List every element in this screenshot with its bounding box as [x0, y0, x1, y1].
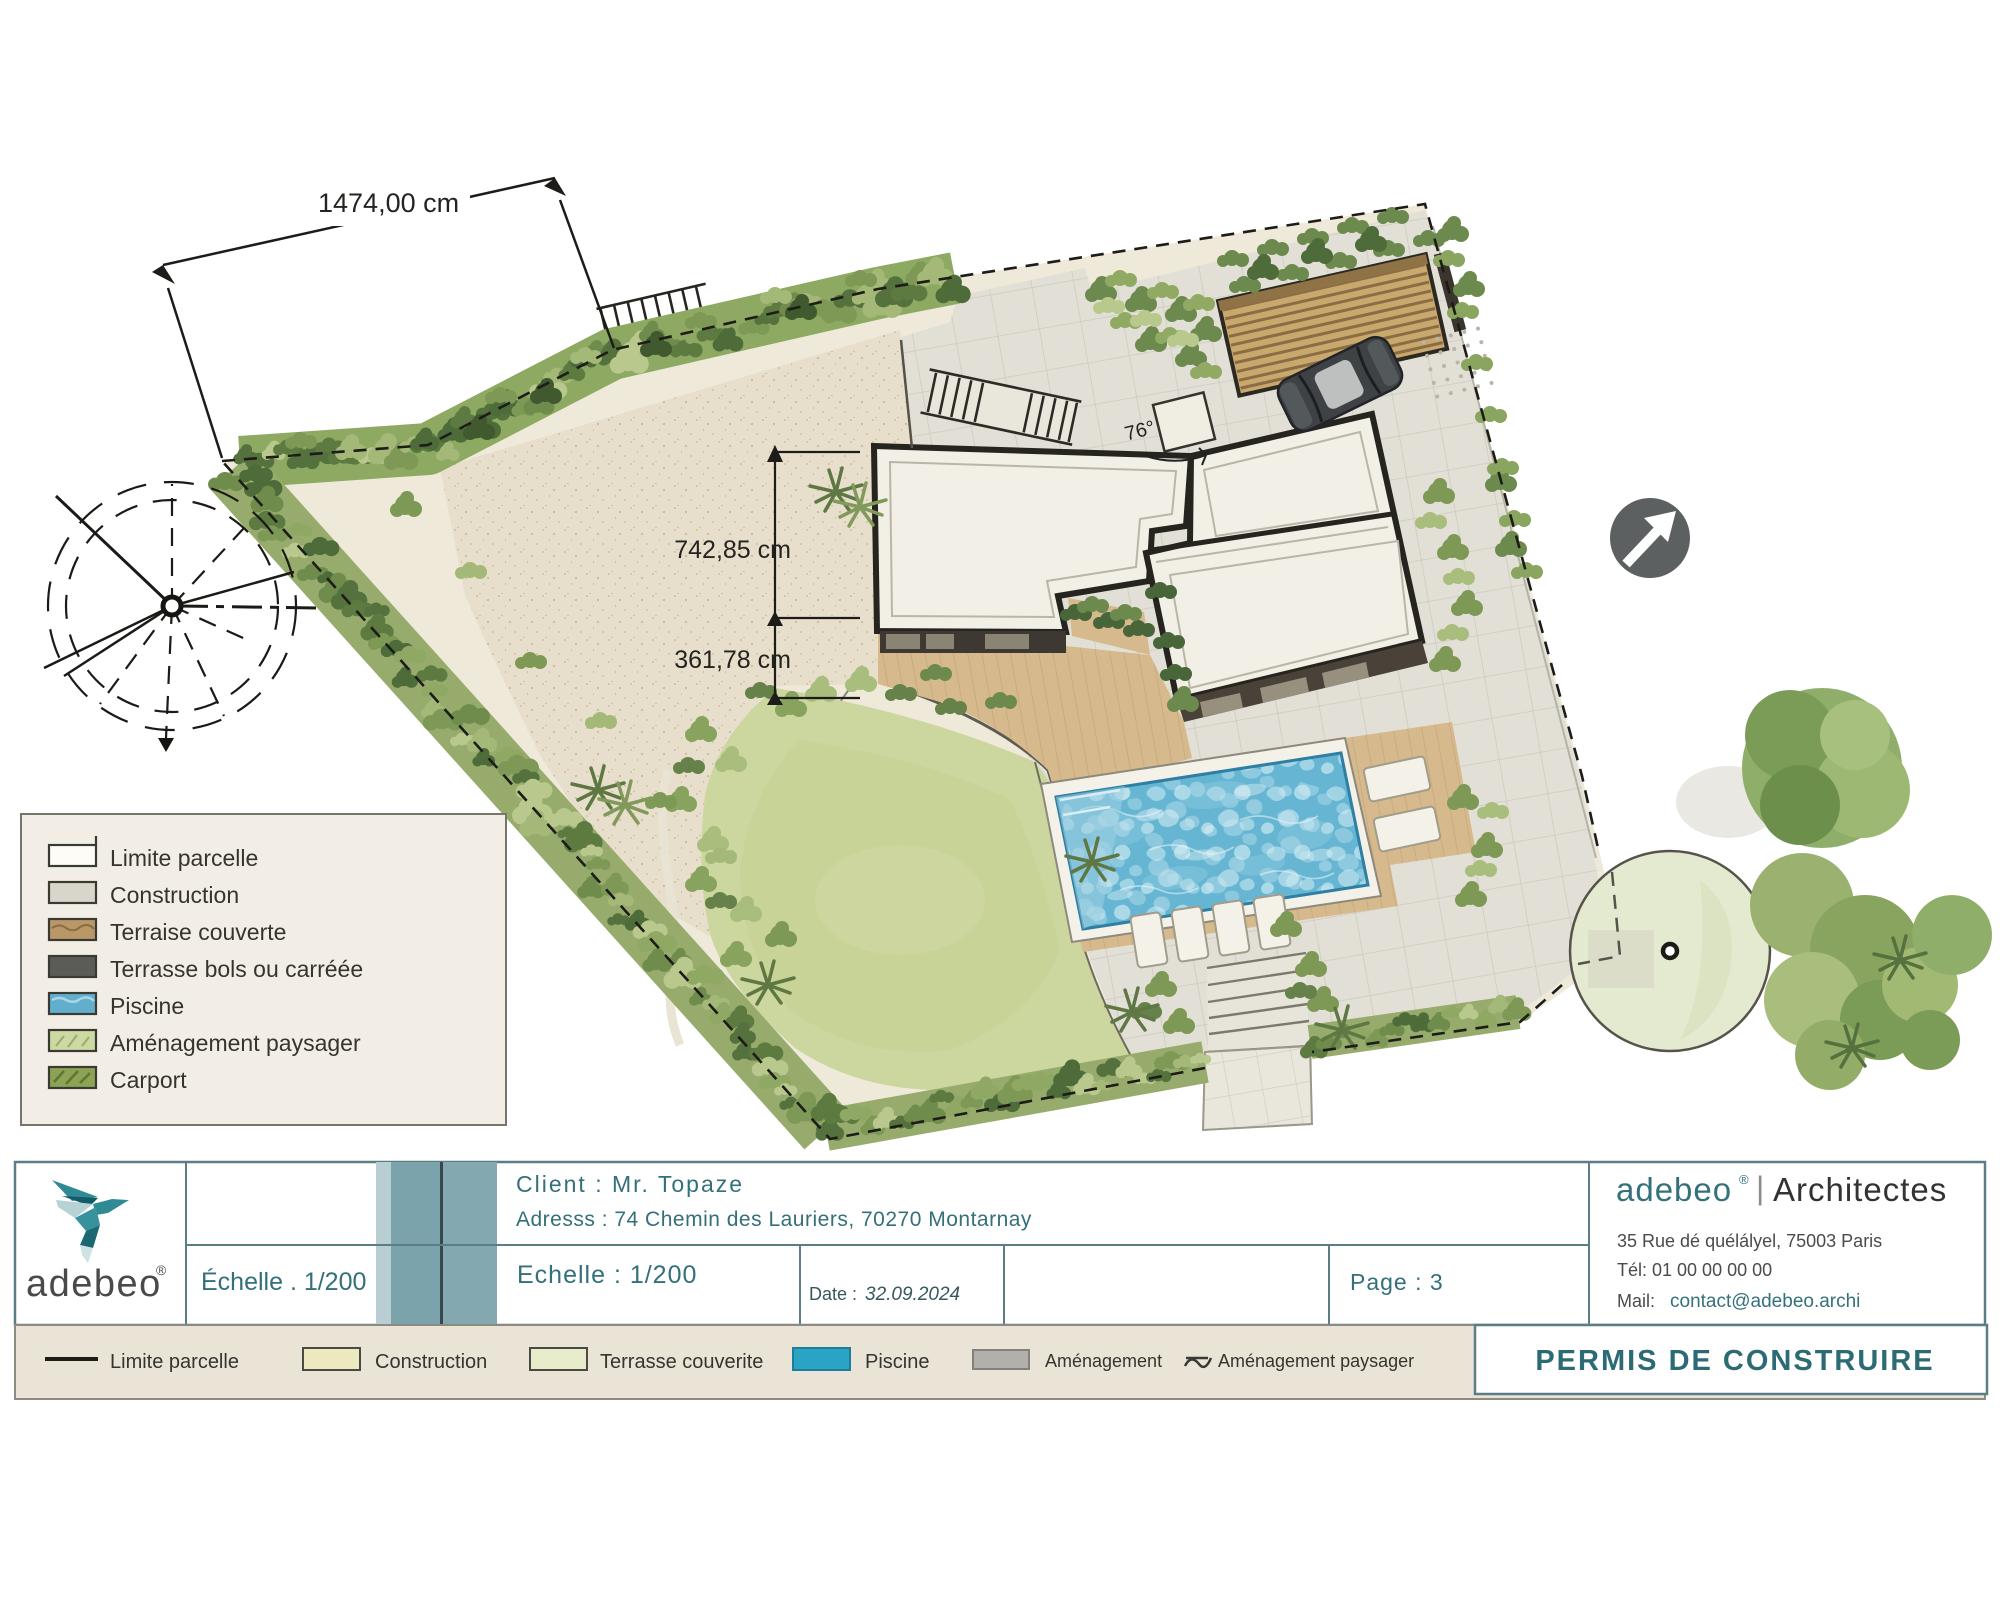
svg-text:Construction: Construction [375, 1351, 487, 1373]
svg-text:Piscine: Piscine [865, 1351, 929, 1373]
svg-text:361,78 cm: 361,78 cm [674, 646, 791, 674]
svg-text:Échelle . 1/200: Échelle . 1/200 [201, 1267, 366, 1296]
svg-text:Adresss : 74 Chemin des Lauri: Adresss : 74 Chemin des Lauriers, 70270 … [516, 1208, 1032, 1231]
svg-text:Architectes: Architectes [1773, 1171, 1947, 1208]
svg-text:1474,00 cm: 1474,00 cm [318, 188, 459, 218]
svg-text:Piscine: Piscine [110, 993, 184, 1019]
svg-text:Terrasse bols ou carréée: Terrasse bols ou carréée [110, 956, 363, 982]
svg-text:32.09.2024: 32.09.2024 [865, 1284, 960, 1305]
svg-text:742,85 cm: 742,85 cm [674, 536, 791, 564]
svg-text:Construction: Construction [110, 882, 239, 908]
svg-text:Aménagement paysager: Aménagement paysager [110, 1030, 361, 1056]
svg-text:Carport: Carport [110, 1067, 187, 1093]
svg-text:Mail:: Mail: [1617, 1291, 1655, 1311]
svg-text:Limite parcelle: Limite parcelle [110, 845, 258, 871]
svg-text:Aménagement paysager: Aménagement paysager [1218, 1351, 1414, 1371]
svg-text:35 Rue dé quélályel, 75003 Par: 35 Rue dé quélályel, 75003 Paris [1617, 1231, 1882, 1251]
svg-text:Page : 3: Page : 3 [1350, 1269, 1444, 1295]
svg-text:Client : Mr. Topaze: Client : Mr. Topaze [516, 1171, 744, 1197]
svg-text:|: | [1756, 1170, 1764, 1206]
svg-text:®: ® [1739, 1172, 1749, 1187]
svg-text:Tél: 01 00 00 00 00: Tél: 01 00 00 00 00 [1617, 1260, 1772, 1280]
svg-text:PERMIS DE CONSTRUIRE: PERMIS DE CONSTRUIRE [1535, 1345, 1934, 1377]
svg-text:®: ® [156, 1262, 167, 1278]
svg-text:Limite parcelle: Limite parcelle [110, 1351, 239, 1373]
svg-text:Terrasse couverite: Terrasse couverite [600, 1351, 763, 1373]
svg-text:Terraise couverte: Terraise couverte [110, 919, 286, 945]
svg-text:contact@adebeo.archi: contact@adebeo.archi [1670, 1291, 1860, 1312]
svg-text:Aménagement: Aménagement [1045, 1351, 1162, 1371]
svg-text:Date :: Date : [809, 1284, 857, 1304]
svg-text:adebeo: adebeo [1616, 1171, 1732, 1208]
svg-text:Echelle : 1/200: Echelle : 1/200 [517, 1261, 697, 1289]
svg-text:adebeo: adebeo [26, 1263, 162, 1305]
